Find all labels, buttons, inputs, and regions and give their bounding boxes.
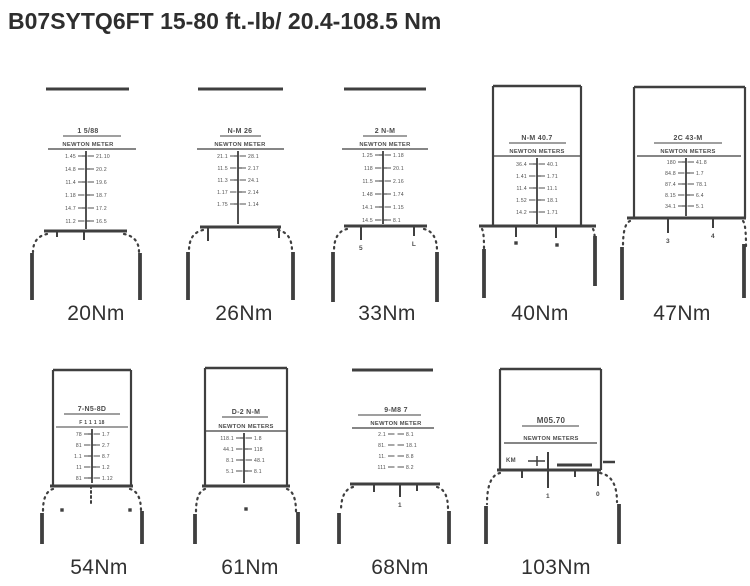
svg-text:118: 118 <box>364 166 373 172</box>
svg-text:F 1 1 1 18: F 1 1 1 18 <box>79 420 105 426</box>
svg-text:2.16: 2.16 <box>393 179 404 185</box>
wrench-figure-40nm: N-M 40.7NEWTON METERS36.440.11.411.7111.… <box>479 86 596 298</box>
svg-text:118: 118 <box>254 447 263 453</box>
svg-text:1.7: 1.7 <box>102 432 110 438</box>
svg-text:1.48: 1.48 <box>362 192 373 198</box>
svg-text:11.1: 11.1 <box>547 186 558 192</box>
svg-text:2.1: 2.1 <box>378 432 386 438</box>
svg-text:78: 78 <box>76 432 82 438</box>
svg-text:KM: KM <box>506 458 516 464</box>
svg-text:L: L <box>412 241 416 248</box>
svg-text:8.1: 8.1 <box>406 432 414 438</box>
svg-text:14.5: 14.5 <box>362 218 373 224</box>
svg-text:11.: 11. <box>379 454 386 460</box>
figure-label-47nm: 47Nm <box>653 302 711 326</box>
svg-text:N-M 26: N-M 26 <box>228 128 253 135</box>
svg-text:1.71: 1.71 <box>547 174 558 180</box>
svg-text:1.15: 1.15 <box>393 205 404 211</box>
svg-text:NEWTON METER: NEWTON METER <box>370 421 422 427</box>
svg-text:1.8: 1.8 <box>254 436 262 442</box>
svg-text:1.18: 1.18 <box>65 193 76 199</box>
product-figure-page: B07SYTQ6FT 15-80 ft.-lb/ 20.4-108.5 Nm 1… <box>0 0 750 586</box>
svg-text:14.2: 14.2 <box>516 210 527 216</box>
svg-text:7-N5-8D: 7-N5-8D <box>78 406 107 413</box>
torque-wrench-scale-diagrams: 1 5/88NEWTON METER1.4521.1014.820.211.41… <box>0 0 750 586</box>
svg-text:NEWTON METERS: NEWTON METERS <box>523 436 578 442</box>
svg-text:118.1: 118.1 <box>220 436 234 442</box>
svg-text:20.1: 20.1 <box>393 166 404 172</box>
svg-text:20.2: 20.2 <box>96 167 107 173</box>
svg-text:18.7: 18.7 <box>96 193 107 199</box>
svg-text:48.1: 48.1 <box>254 458 265 464</box>
svg-text:8.1: 8.1 <box>393 218 401 224</box>
svg-text:NEWTON METERS: NEWTON METERS <box>509 149 564 155</box>
svg-text:180: 180 <box>667 160 676 166</box>
svg-text:1.17: 1.17 <box>217 190 228 196</box>
svg-text:11: 11 <box>76 465 82 471</box>
svg-text:NEWTON METERS: NEWTON METERS <box>218 424 273 430</box>
svg-text:36.4: 36.4 <box>516 162 527 168</box>
svg-text:2C 43-M: 2C 43-M <box>674 135 703 142</box>
svg-text:8.1: 8.1 <box>254 469 262 475</box>
svg-text:5: 5 <box>359 245 363 252</box>
svg-text:34.1: 34.1 <box>665 204 676 210</box>
wrench-figure-47nm: 2C 43-MNEWTON METERS18041.884.81.787.478… <box>622 87 746 300</box>
svg-text:16.5: 16.5 <box>96 219 107 225</box>
figure-label-54nm: 54Nm <box>70 556 128 580</box>
svg-text:81: 81 <box>76 443 82 449</box>
svg-text:11.3: 11.3 <box>217 178 228 184</box>
svg-text:8.2: 8.2 <box>406 465 414 471</box>
svg-text:28.1: 28.1 <box>248 154 259 160</box>
wrench-figure-61nm: D-2 N-MNEWTON METERS118.11.844.11188.148… <box>195 368 298 544</box>
svg-text:87.4: 87.4 <box>665 182 676 188</box>
wrench-figure-68nm: 9-M8 7NEWTON METER2.18.181.18.111.8.8111… <box>339 370 449 544</box>
svg-text:14.1: 14.1 <box>362 205 373 211</box>
svg-text:1.45: 1.45 <box>65 154 76 160</box>
svg-text:11.5: 11.5 <box>217 166 228 172</box>
figure-label-33nm: 33Nm <box>358 302 416 326</box>
svg-text:81.: 81. <box>378 443 386 449</box>
svg-text:19.6: 19.6 <box>96 180 107 186</box>
wrench-figure-26nm: N-M 26NEWTON METER21.128.111.52.1711.324… <box>188 89 293 300</box>
wrench-figure-54nm: 7-N5-8DF 1 1 1 18781.7812.71.18.7111.281… <box>42 370 142 544</box>
svg-text:14.8: 14.8 <box>65 167 76 173</box>
svg-text:21.10: 21.10 <box>96 154 110 160</box>
svg-text:1.71: 1.71 <box>547 210 558 216</box>
svg-text:NEWTON METERS: NEWTON METERS <box>660 149 715 155</box>
svg-text:1.2: 1.2 <box>102 465 110 471</box>
svg-text:8.7: 8.7 <box>102 454 110 460</box>
svg-text:1.7: 1.7 <box>696 171 704 177</box>
svg-text:0: 0 <box>596 491 600 498</box>
svg-text:1.75: 1.75 <box>217 202 228 208</box>
svg-text:84.8: 84.8 <box>665 171 676 177</box>
svg-text:6.4: 6.4 <box>696 193 704 199</box>
svg-text:18.1: 18.1 <box>406 443 417 449</box>
svg-text:NEWTON METER: NEWTON METER <box>214 142 266 148</box>
svg-text:1.14: 1.14 <box>248 202 259 208</box>
svg-text:2.7: 2.7 <box>102 443 110 449</box>
svg-text:9-M8 7: 9-M8 7 <box>384 407 408 414</box>
svg-text:18.1: 18.1 <box>547 198 558 204</box>
svg-text:N-M 40.7: N-M 40.7 <box>521 135 552 142</box>
svg-text:40.1: 40.1 <box>547 162 558 168</box>
svg-text:21.1: 21.1 <box>217 154 228 160</box>
svg-text:2 N-M: 2 N-M <box>375 128 396 135</box>
svg-text:1.74: 1.74 <box>393 192 404 198</box>
svg-text:3: 3 <box>666 238 670 245</box>
figure-label-20nm: 20Nm <box>67 302 125 326</box>
svg-text:1: 1 <box>398 502 402 509</box>
svg-text:44.1: 44.1 <box>223 447 234 453</box>
wrench-figure-20nm: 1 5/88NEWTON METER1.4521.1014.820.211.41… <box>32 89 140 300</box>
svg-text:17.2: 17.2 <box>96 206 107 212</box>
svg-text:M05.70: M05.70 <box>537 416 566 425</box>
svg-text:14.7: 14.7 <box>65 206 76 212</box>
svg-text:D-2 N-M: D-2 N-M <box>232 409 261 416</box>
svg-text:78.1: 78.1 <box>696 182 707 188</box>
svg-text:1.25: 1.25 <box>362 153 373 159</box>
svg-text:1.41: 1.41 <box>516 174 527 180</box>
svg-text:111: 111 <box>377 465 386 471</box>
svg-text:11.5: 11.5 <box>362 179 373 185</box>
svg-text:41.8: 41.8 <box>696 160 707 166</box>
svg-text:1 5/88: 1 5/88 <box>77 128 98 135</box>
svg-text:11.4: 11.4 <box>65 180 76 186</box>
svg-text:24.1: 24.1 <box>248 178 259 184</box>
svg-text:1.12: 1.12 <box>102 476 113 482</box>
svg-text:1.18: 1.18 <box>393 153 404 159</box>
svg-text:5.1: 5.1 <box>696 204 704 210</box>
figure-label-61nm: 61Nm <box>221 556 279 580</box>
svg-text:8.8: 8.8 <box>406 454 414 460</box>
svg-text:2.14: 2.14 <box>248 190 259 196</box>
svg-text:2.17: 2.17 <box>248 166 259 172</box>
figure-label-40nm: 40Nm <box>511 302 569 326</box>
svg-text:5.1: 5.1 <box>226 469 234 475</box>
figure-label-26nm: 26Nm <box>215 302 273 326</box>
svg-text:NEWTON METER: NEWTON METER <box>359 142 411 148</box>
svg-text:8.1: 8.1 <box>226 458 234 464</box>
wrench-figure-103nm: M05.70NEWTON METERSKM10 <box>486 369 619 544</box>
svg-text:4: 4 <box>711 233 715 240</box>
svg-text:81: 81 <box>76 476 82 482</box>
svg-text:11.4: 11.4 <box>516 186 527 192</box>
svg-text:NEWTON METER: NEWTON METER <box>62 142 114 148</box>
figure-label-68nm: 68Nm <box>371 556 429 580</box>
svg-text:1.1: 1.1 <box>74 454 82 460</box>
svg-text:1.52: 1.52 <box>516 198 527 204</box>
figure-label-103nm: 103Nm <box>521 556 591 580</box>
svg-text:11.2: 11.2 <box>65 219 76 225</box>
svg-text:1: 1 <box>546 493 550 500</box>
wrench-figure-33nm: 2 N-MNEWTON METER1.251.1811820.111.52.16… <box>333 89 437 302</box>
svg-text:8.15: 8.15 <box>665 193 676 199</box>
